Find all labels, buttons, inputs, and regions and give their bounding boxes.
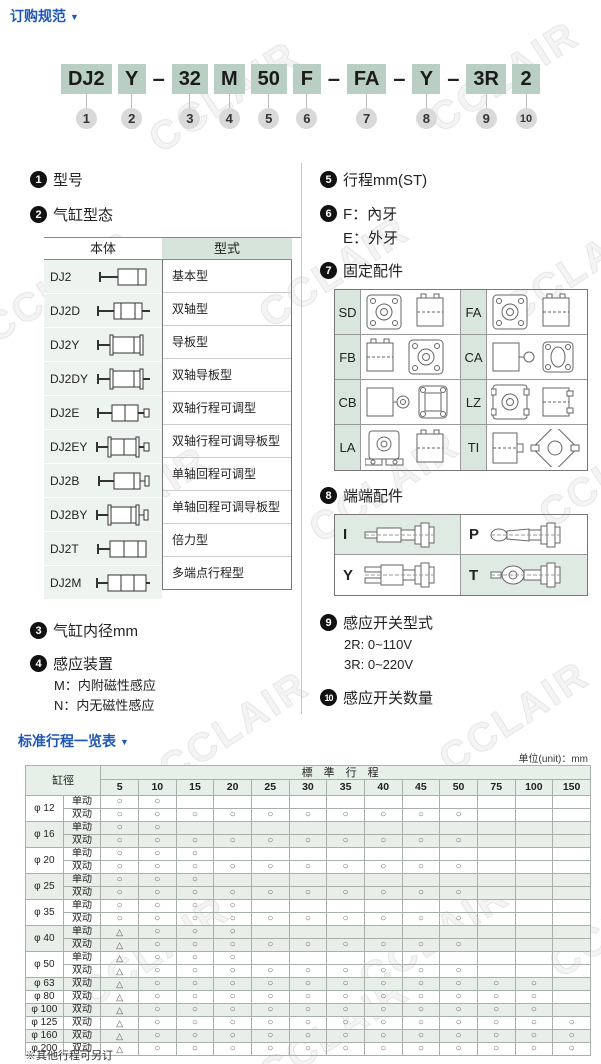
- bore-cell: φ 16: [26, 822, 64, 848]
- stroke-mark-cell: [327, 952, 365, 965]
- action-cell: 双动: [63, 861, 101, 874]
- type-name: 单轴回程可调型: [163, 458, 291, 491]
- item-10-title: 感应开关数量: [343, 687, 433, 708]
- stroke-mark-cell: [553, 874, 591, 887]
- stroke-mark-cell: [289, 900, 327, 913]
- stroke-mark-cell: ○: [364, 809, 402, 822]
- stroke-mark-cell: [364, 874, 402, 887]
- stroke-mark-cell: ○: [101, 809, 139, 822]
- item-1-title: 型号: [53, 169, 83, 190]
- stroke-mark-cell: ○: [402, 861, 440, 874]
- stroke-mark-cell: ○: [327, 1004, 365, 1017]
- stroke-mark-cell: ○: [214, 887, 252, 900]
- stroke-mark-cell: ○: [440, 1030, 478, 1043]
- model-segment: 3R9: [466, 64, 506, 129]
- stroke-mark-cell: ○: [214, 926, 252, 939]
- rod-end-icon: [363, 520, 460, 550]
- stroke-mark-cell: ○: [477, 1030, 515, 1043]
- connector-line: [366, 94, 367, 108]
- bore-cell: φ 25: [26, 874, 64, 900]
- stroke-mark-cell: ○: [138, 822, 176, 835]
- stroke-mark-cell: ○: [176, 978, 214, 991]
- stroke-mark-cell: [402, 822, 440, 835]
- model-segment: Y8: [412, 64, 440, 129]
- stroke-mark-cell: [553, 926, 591, 939]
- mount-drawing-icon: [491, 383, 583, 421]
- stroke-mark-cell: ○: [402, 809, 440, 822]
- item-5-title: 行程mm(ST): [343, 169, 427, 190]
- item-9-title: 感应开关型式: [343, 612, 433, 633]
- stroke-mark-cell: [289, 874, 327, 887]
- model-segment-box: Y: [118, 64, 146, 94]
- stroke-table-row: 双动○○○○○○○○○○: [26, 913, 591, 926]
- stroke-mark-cell: ○: [402, 1017, 440, 1030]
- stroke-mark-cell: ○: [515, 1043, 553, 1056]
- stroke-mark-cell: ○: [214, 900, 252, 913]
- rod-end-accessories-grid: I P Y T: [334, 514, 588, 596]
- stroke-mark-cell: ○: [289, 1004, 327, 1017]
- stroke-mark-cell: [553, 796, 591, 809]
- stroke-mark-cell: ○: [289, 861, 327, 874]
- stroke-mark-cell: △: [101, 1004, 139, 1017]
- stroke-table-row: φ 12单动○○: [26, 796, 591, 809]
- model-segment-box: Y: [412, 64, 440, 94]
- bore-cell: φ 12: [26, 796, 64, 822]
- action-cell: 单动: [63, 822, 101, 835]
- mount-drawing-lz: [487, 380, 587, 425]
- connector-line: [526, 94, 527, 108]
- stroke-mark-cell: ○: [364, 939, 402, 952]
- stroke-mark-cell: [402, 952, 440, 965]
- stroke-column-header: 30: [289, 780, 327, 796]
- item-10: 10 感应开关数量: [320, 687, 588, 708]
- mount-drawing-ti: [487, 425, 587, 470]
- item-3: 3 气缸内径mm: [30, 620, 301, 641]
- action-cell: 双动: [63, 991, 101, 1004]
- stroke-mark-cell: ○: [214, 939, 252, 952]
- model-segment: Y2: [118, 64, 146, 129]
- stroke-mark-cell: [440, 822, 478, 835]
- stroke-mark-cell: ○: [138, 991, 176, 1004]
- stroke-mark-cell: △: [101, 926, 139, 939]
- stroke-mark-cell: [477, 900, 515, 913]
- end-cell-y: Y: [335, 555, 461, 595]
- stroke-mark-cell: ○: [402, 913, 440, 926]
- stroke-table-footnote: ※其他行程可另订: [25, 1047, 113, 1063]
- stroke-mark-cell: ○: [327, 1043, 365, 1056]
- stroke-mark-cell: ○: [251, 861, 289, 874]
- stroke-mark-cell: [477, 835, 515, 848]
- stroke-mark-cell: ○: [327, 1017, 365, 1030]
- item-6: 6 F：內牙: [320, 203, 588, 224]
- stroke-mark-cell: [289, 926, 327, 939]
- cylinder-icon-return-adjustable-guide: [94, 504, 152, 526]
- model-segment-box: 3R: [466, 64, 506, 94]
- stroke-mark-cell: [477, 796, 515, 809]
- stroke-table-row: φ 125双动△○○○○○○○○○○○○: [26, 1017, 591, 1030]
- stroke-mark-cell: ○: [251, 939, 289, 952]
- stroke-mark-cell: ○: [138, 913, 176, 926]
- model-segment-box: 32: [172, 64, 208, 94]
- type-name: 基本型: [163, 260, 291, 293]
- stroke-mark-cell: [327, 900, 365, 913]
- stroke-mark-cell: [251, 822, 289, 835]
- mount-drawing-icon: [365, 429, 457, 467]
- stroke-column-header: 150: [553, 780, 591, 796]
- stroke-mark-cell: [553, 952, 591, 965]
- stroke-mark-cell: [477, 809, 515, 822]
- type-name: 多端点行程型: [163, 557, 291, 589]
- stroke-mark-cell: ○: [138, 861, 176, 874]
- cylinder-icon-return-adjustable: [94, 470, 152, 492]
- stroke-mark-cell: [364, 848, 402, 861]
- stroke-table-row: 双动△○○○○○○○○○: [26, 939, 591, 952]
- stroke-mark-cell: [440, 848, 478, 861]
- stroke-mark-cell: ○: [101, 822, 139, 835]
- mount-label-fa: FA: [461, 290, 487, 335]
- stroke-mark-cell: [553, 822, 591, 835]
- segment-number-circle: 4: [219, 108, 240, 129]
- bore-cell: φ 160: [26, 1030, 64, 1043]
- item-8-title: 端端配件: [343, 485, 403, 506]
- mount-drawing-ca: [487, 335, 587, 380]
- action-cell: 双动: [63, 1017, 101, 1030]
- stroke-mark-cell: [402, 926, 440, 939]
- stroke-mark-cell: [515, 822, 553, 835]
- stroke-mark-cell: ○: [101, 913, 139, 926]
- stroke-mark-cell: ○: [289, 913, 327, 926]
- stroke-mark-cell: ○: [176, 861, 214, 874]
- connector-line: [189, 94, 190, 108]
- standard-stroke-table: 缸徑標準行程510152025303540455075100150φ 12单动○…: [25, 765, 591, 1056]
- model-name: DJ2T: [50, 542, 92, 556]
- stroke-mark-cell: ○: [101, 874, 139, 887]
- stroke-mark-cell: [515, 848, 553, 861]
- stroke-mark-cell: ○: [138, 796, 176, 809]
- model-segment-box: M: [214, 64, 245, 94]
- connector-line: [268, 94, 269, 108]
- stroke-mark-cell: ○: [440, 835, 478, 848]
- stroke-table-title: 标准行程一览表: [18, 731, 116, 751]
- stroke-mark-cell: ○: [214, 991, 252, 1004]
- stroke-mark-cell: [327, 822, 365, 835]
- stroke-mark-cell: ○: [440, 887, 478, 900]
- stroke-mark-cell: ○: [364, 835, 402, 848]
- stroke-mark-cell: ○: [214, 965, 252, 978]
- item-6-number: 6: [320, 205, 337, 222]
- item-1-number: 1: [30, 171, 47, 188]
- stroke-mark-cell: [477, 848, 515, 861]
- item-3-number: 3: [30, 622, 47, 639]
- stroke-mark-cell: ○: [176, 809, 214, 822]
- stroke-mark-cell: ○: [101, 887, 139, 900]
- stroke-mark-cell: ○: [364, 887, 402, 900]
- stroke-mark-cell: ○: [138, 1043, 176, 1056]
- stroke-mark-cell: [440, 952, 478, 965]
- connector-line: [426, 94, 427, 108]
- action-cell: 单动: [63, 796, 101, 809]
- stroke-mark-cell: ○: [327, 965, 365, 978]
- stroke-mark-cell: [553, 835, 591, 848]
- stroke-mark-cell: [176, 796, 214, 809]
- stroke-mark-cell: ○: [101, 861, 139, 874]
- sensor-option-m: M：内附磁性感应: [54, 677, 301, 694]
- stroke-mark-cell: ○: [251, 978, 289, 991]
- type-table-row: DJ2M: [44, 566, 162, 600]
- stroke-mark-cell: ○: [138, 848, 176, 861]
- stroke-mark-cell: ○: [327, 861, 365, 874]
- stroke-mark-cell: ○: [364, 1043, 402, 1056]
- model-segment: 323: [172, 64, 208, 129]
- action-cell: 双动: [63, 887, 101, 900]
- rod-end-icon: [363, 560, 460, 590]
- stroke-mark-cell: ○: [138, 965, 176, 978]
- stroke-mark-cell: ○: [138, 835, 176, 848]
- stroke-mark-cell: [515, 913, 553, 926]
- segment-number-circle: 1: [76, 108, 97, 129]
- segment-number-circle: 9: [476, 108, 497, 129]
- stroke-mark-cell: [515, 952, 553, 965]
- stroke-mark-cell: ○: [327, 978, 365, 991]
- stroke-mark-cell: ○: [515, 978, 553, 991]
- stroke-mark-cell: ○: [440, 861, 478, 874]
- stroke-mark-cell: [289, 952, 327, 965]
- bore-cell: φ 50: [26, 952, 64, 978]
- model-name: DJ2Y: [50, 338, 92, 352]
- bore-cell: φ 80: [26, 991, 64, 1004]
- stroke-mark-cell: [515, 874, 553, 887]
- action-cell: 单动: [63, 874, 101, 887]
- stroke-mark-cell: ○: [214, 1004, 252, 1017]
- action-cell: 双动: [63, 1030, 101, 1043]
- stroke-column-header: 75: [477, 780, 515, 796]
- stroke-mark-cell: ○: [176, 848, 214, 861]
- stroke-mark-cell: [214, 822, 252, 835]
- stroke-mark-cell: ○: [402, 991, 440, 1004]
- item-9: 9 感应开关型式: [320, 612, 588, 633]
- cylinder-icon-guide-plate: [94, 334, 152, 356]
- stroke-mark-cell: ○: [138, 939, 176, 952]
- stroke-mark-cell: ○: [214, 1043, 252, 1056]
- model-dash: –: [392, 64, 406, 94]
- stroke-table-row: φ 20单动○○○: [26, 848, 591, 861]
- type-table-row: DJ2BY: [44, 498, 162, 532]
- stroke-mark-cell: ○: [214, 952, 252, 965]
- stroke-mark-cell: ○: [440, 939, 478, 952]
- stroke-mark-cell: ○: [402, 978, 440, 991]
- stroke-mark-cell: ○: [289, 939, 327, 952]
- mount-drawing-fb: [361, 335, 461, 380]
- stroke-column-header: 45: [402, 780, 440, 796]
- stroke-mark-cell: ○: [138, 926, 176, 939]
- stroke-mark-cell: ○: [101, 848, 139, 861]
- rod-end-icon: [489, 560, 587, 590]
- bore-cell: φ 35: [26, 900, 64, 926]
- stroke-mark-cell: [364, 900, 402, 913]
- item-8-number: 8: [320, 487, 337, 504]
- stroke-mark-cell: [440, 796, 478, 809]
- model-segment: FA7: [347, 64, 387, 129]
- stroke-mark-cell: ○: [101, 900, 139, 913]
- stroke-mark-cell: ○: [364, 1030, 402, 1043]
- stroke-mark-cell: ○: [214, 835, 252, 848]
- stroke-mark-cell: [553, 887, 591, 900]
- stroke-mark-cell: [402, 848, 440, 861]
- stroke-mark-cell: [402, 900, 440, 913]
- connector-line: [486, 94, 487, 108]
- item-4-number: 4: [30, 655, 47, 672]
- stroke-mark-cell: [176, 822, 214, 835]
- stroke-mark-cell: ○: [440, 1017, 478, 1030]
- dash-separator: –: [446, 64, 460, 94]
- stroke-table-row: 双动○○○○○○○○○○: [26, 809, 591, 822]
- stroke-mark-cell: [251, 796, 289, 809]
- spec-columns: 1 型号 2 气缸型态 本体 DJ2 DJ2D: [30, 163, 588, 714]
- stroke-mark-cell: [251, 874, 289, 887]
- stroke-mark-cell: ○: [402, 1004, 440, 1017]
- stroke-mark-cell: [327, 796, 365, 809]
- mount-drawing-icon: [365, 338, 457, 376]
- stroke-table-row: φ 50单动△○○○: [26, 952, 591, 965]
- stroke-mark-cell: ○: [176, 939, 214, 952]
- model-segment: 210: [512, 64, 540, 129]
- type-table-header-type: 型式: [162, 238, 292, 260]
- mount-drawing-la: [361, 425, 461, 470]
- stroke-mark-cell: ○: [214, 809, 252, 822]
- model-name: DJ2DY: [50, 372, 92, 386]
- stroke-mark-cell: ○: [101, 796, 139, 809]
- type-name: 倍力型: [163, 524, 291, 557]
- stroke-table-row: 双动○○○○○○○○○○: [26, 835, 591, 848]
- stroke-mark-cell: ○: [440, 1043, 478, 1056]
- bore-cell: φ 20: [26, 848, 64, 874]
- stroke-mark-cell: [515, 835, 553, 848]
- type-name: 双轴行程可调型: [163, 392, 291, 425]
- stroke-mark-cell: [515, 939, 553, 952]
- model-segment-box: 2: [512, 64, 540, 94]
- unit-label: 单位(unit)：mm: [519, 750, 588, 765]
- model-dash: –: [152, 64, 166, 94]
- mount-drawing-icon: [491, 338, 583, 376]
- dash-separator: –: [152, 64, 166, 94]
- type-table-row: DJ2: [44, 260, 162, 294]
- stroke-mark-cell: ○: [440, 965, 478, 978]
- stroke-mark-cell: [364, 822, 402, 835]
- stroke-mark-cell: [477, 965, 515, 978]
- stroke-mark-cell: ○: [176, 913, 214, 926]
- sensor-option-n: N：内无磁性感应: [54, 697, 301, 714]
- stroke-mark-cell: ○: [477, 978, 515, 991]
- connector-line: [86, 94, 87, 108]
- stroke-column-header: 5: [101, 780, 139, 796]
- model-segment-box: F: [293, 64, 321, 94]
- model-segment: F6: [293, 64, 321, 129]
- stroke-mark-cell: [364, 796, 402, 809]
- model-segment: 505: [251, 64, 287, 129]
- stroke-mark-cell: ○: [176, 900, 214, 913]
- stroke-mark-cell: ○: [364, 965, 402, 978]
- stroke-mark-cell: [251, 952, 289, 965]
- stroke-mark-cell: ○: [440, 913, 478, 926]
- stroke-table-row: φ 16单动○○: [26, 822, 591, 835]
- connector-line: [131, 94, 132, 108]
- stroke-mark-cell: ○: [214, 861, 252, 874]
- mount-label-fb: FB: [335, 335, 361, 380]
- action-cell: 双动: [63, 809, 101, 822]
- stroke-mark-cell: ○: [402, 1030, 440, 1043]
- stroke-mark-cell: [515, 796, 553, 809]
- stroke-mark-cell: [515, 965, 553, 978]
- mount-drawing-icon: [365, 293, 457, 331]
- stroke-mark-cell: ○: [402, 887, 440, 900]
- stroke-mark-cell: ○: [251, 1004, 289, 1017]
- stroke-table-row: φ 100双动△○○○○○○○○○○○: [26, 1004, 591, 1017]
- cylinder-icon-adjustable: [94, 402, 152, 424]
- stroke-mark-cell: [251, 848, 289, 861]
- stroke-mark-cell: ○: [553, 1017, 591, 1030]
- dropdown-arrow-icon: ▼: [120, 737, 129, 747]
- stroke-mark-cell: ○: [176, 1017, 214, 1030]
- thread-option-f: F：內牙: [343, 203, 397, 224]
- bore-header-cell: 缸徑: [26, 766, 101, 796]
- stroke-mark-cell: ○: [176, 835, 214, 848]
- model-name: DJ2D: [50, 304, 92, 318]
- stroke-mark-cell: [553, 809, 591, 822]
- segment-number-circle: 3: [179, 108, 200, 129]
- type-table-body-column: 本体 DJ2 DJ2D DJ2Y DJ2DY: [44, 238, 162, 600]
- model-code-row: DJ21Y2–323M4505F6–FA7–Y8–3R9210: [0, 64, 601, 129]
- stroke-mark-cell: ○: [289, 1043, 327, 1056]
- thread-option-e: E：外牙: [343, 227, 588, 248]
- model-name: DJ2BY: [50, 508, 92, 522]
- stroke-mark-cell: ○: [214, 1017, 252, 1030]
- stroke-mark-cell: [214, 796, 252, 809]
- ordering-spec-header[interactable]: 订购规范 ▼: [10, 6, 79, 26]
- stroke-mark-cell: [477, 913, 515, 926]
- stroke-mark-cell: ○: [364, 913, 402, 926]
- end-cell-i: I: [335, 515, 461, 555]
- stroke-mark-cell: ○: [176, 1004, 214, 1017]
- end-label-i: I: [343, 526, 357, 543]
- stroke-mark-cell: ○: [138, 1004, 176, 1017]
- stroke-mark-cell: ○: [553, 1030, 591, 1043]
- item-10-number: 10: [320, 689, 337, 706]
- bore-cell: φ 100: [26, 1004, 64, 1017]
- stroke-table-header[interactable]: 标准行程一览表 ▼: [18, 731, 129, 751]
- stroke-mark-cell: ○: [515, 991, 553, 1004]
- stroke-table-row: φ 35单动○○○○: [26, 900, 591, 913]
- stroke-column-header: 40: [364, 780, 402, 796]
- type-table-type-box: 基本型 双轴型 导板型 双轴导板型 双轴行程可调型 双轴行程可调导板型 单轴回程…: [162, 260, 292, 590]
- catalog-page: CCLAIR CCLAIR CCLAIR CCLAIR CCLAIR CCLAI…: [0, 0, 601, 1064]
- stroke-table-row: 双动△○○○○○○○○○: [26, 965, 591, 978]
- stroke-mark-cell: ○: [364, 1017, 402, 1030]
- stroke-mark-cell: ○: [440, 1004, 478, 1017]
- stroke-mark-cell: ○: [289, 1030, 327, 1043]
- item-5: 5 行程mm(ST): [320, 169, 588, 190]
- stroke-mark-cell: ○: [327, 939, 365, 952]
- model-name: DJ2M: [50, 576, 92, 590]
- stroke-mark-cell: ○: [138, 874, 176, 887]
- stroke-column-header: 20: [214, 780, 252, 796]
- action-cell: 双动: [63, 965, 101, 978]
- stroke-mark-cell: ○: [176, 1030, 214, 1043]
- stroke-table-row: φ 80双动△○○○○○○○○○○○: [26, 991, 591, 1004]
- stroke-mark-cell: ○: [515, 1004, 553, 1017]
- action-cell: 双动: [63, 913, 101, 926]
- stroke-mark-cell: [440, 926, 478, 939]
- segment-number-circle: 8: [416, 108, 437, 129]
